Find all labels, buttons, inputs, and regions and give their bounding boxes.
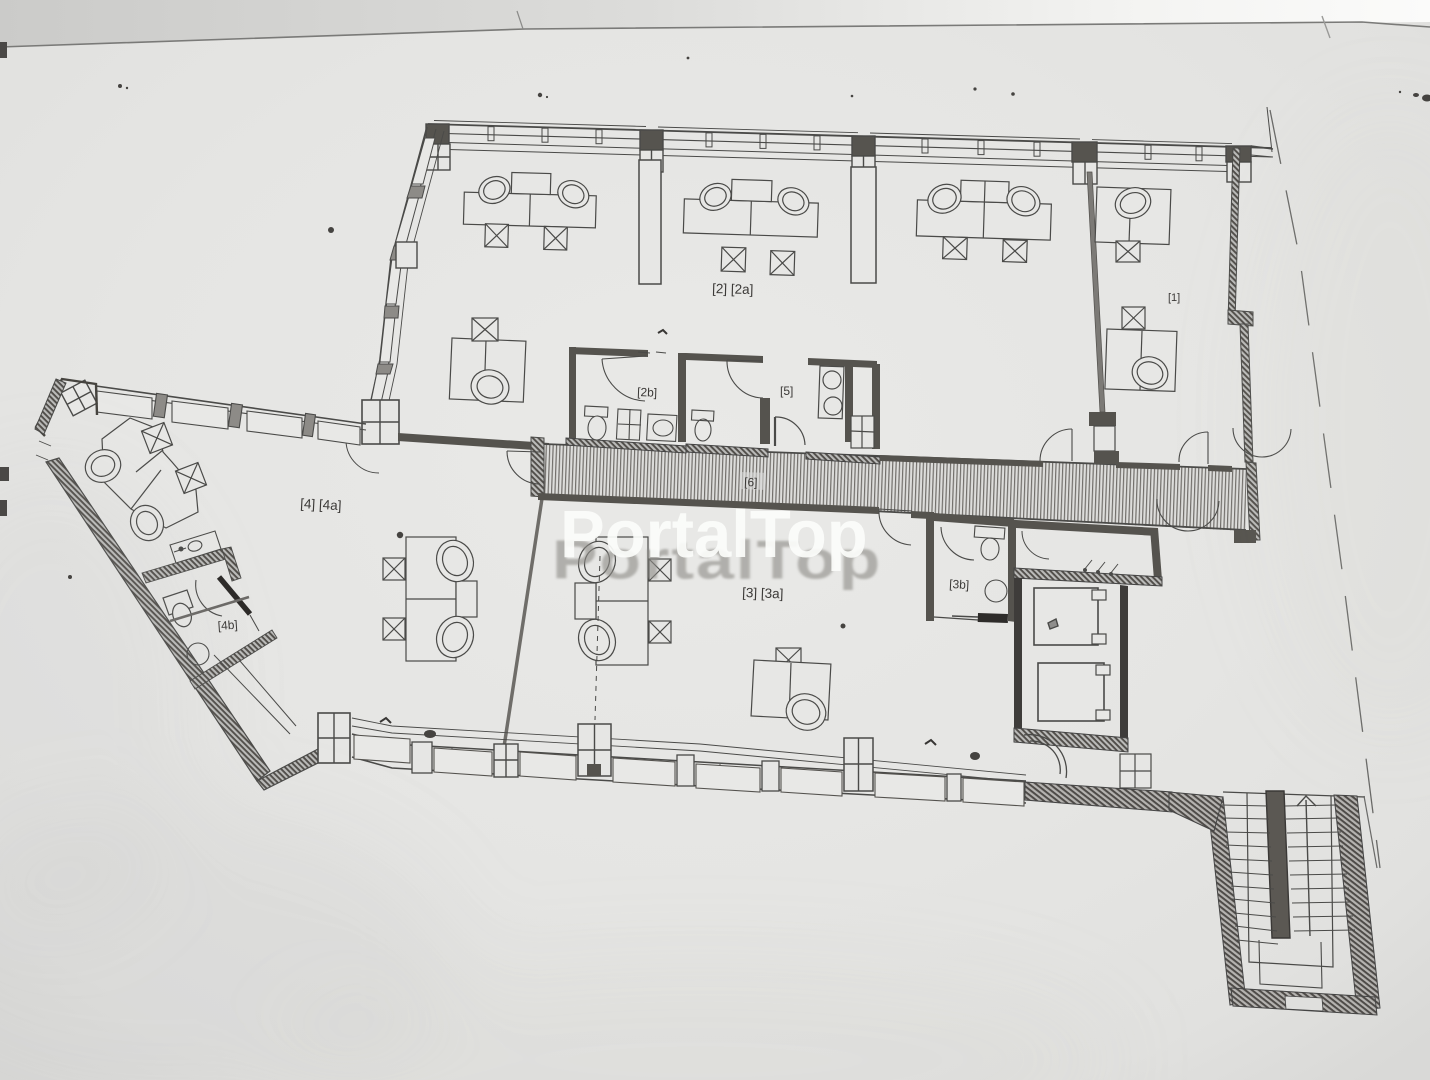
svg-text:[2] [2a]: [2] [2a] [712, 281, 754, 297]
svg-text:[3] [3a]: [3] [3a] [742, 585, 784, 601]
svg-text:[6]: [6] [744, 475, 758, 489]
svg-text:[4] [4a]: [4] [4a] [300, 496, 342, 513]
svg-text:[1]: [1] [1168, 292, 1180, 304]
svg-text:[5]: [5] [780, 384, 793, 398]
svg-text:PortalTop: PortalTop [560, 497, 868, 572]
svg-text:[3b]: [3b] [949, 577, 970, 592]
svg-text:[4b]: [4b] [217, 618, 238, 633]
svg-text:[2b]: [2b] [637, 385, 657, 400]
